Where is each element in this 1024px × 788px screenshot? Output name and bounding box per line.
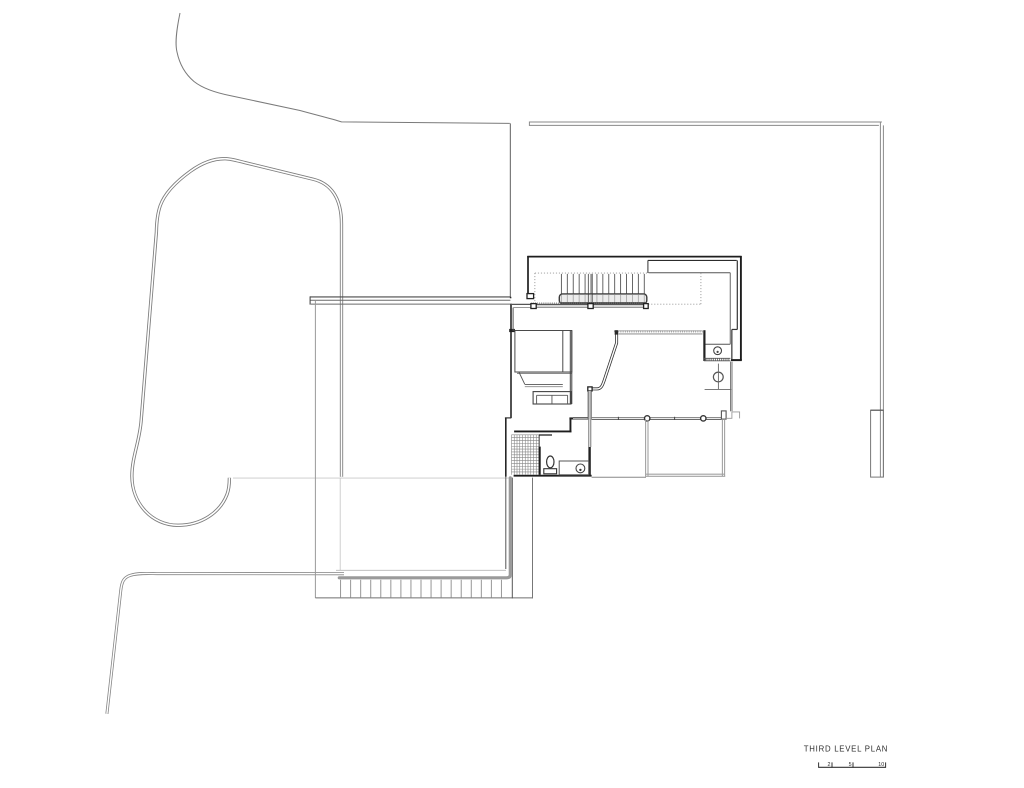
svg-text:10: 10: [878, 762, 884, 768]
svg-text:2: 2: [828, 762, 831, 768]
svg-text:THIRD LEVEL PLAN: THIRD LEVEL PLAN: [804, 744, 888, 753]
svg-text:5: 5: [849, 762, 852, 768]
